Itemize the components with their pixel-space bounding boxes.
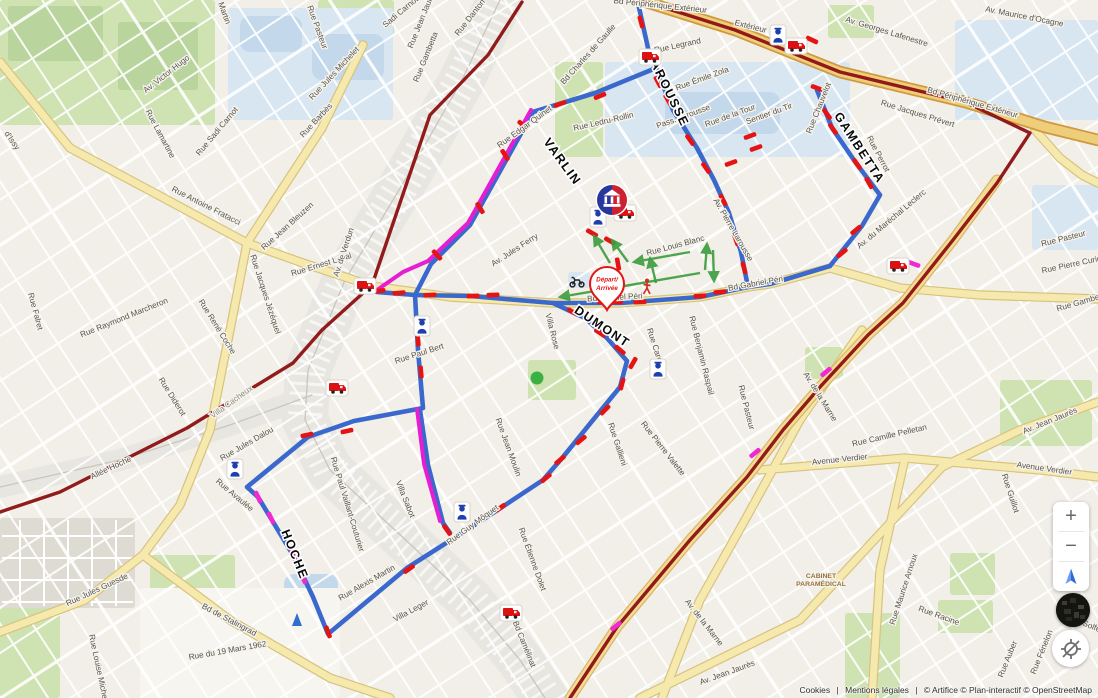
person-icon[interactable] (454, 502, 470, 522)
street-label: Villa Leger (392, 598, 430, 624)
satellite-view-button[interactable] (1056, 593, 1090, 627)
crosshair-slash-icon (1059, 637, 1083, 661)
person-icon[interactable] (770, 25, 786, 45)
street-label: Rue Jacques Jézéquel (248, 253, 282, 335)
attr-separator: | (837, 685, 839, 695)
geolocation-disabled-button[interactable] (1052, 630, 1089, 667)
compass-arrow-icon (1061, 567, 1081, 587)
zone-label: DUMONT (572, 303, 633, 350)
zoom-panel: + − (1053, 502, 1089, 591)
street-label: Rue Pierre Valette (639, 420, 687, 478)
street-label: Rue Falret (26, 292, 45, 332)
truck-icon[interactable] (354, 278, 376, 294)
person-icon[interactable] (227, 459, 243, 479)
svg-text:Départ/: Départ/ (596, 277, 619, 284)
zoom-out-button[interactable]: − (1053, 532, 1089, 561)
street-label: PARAMÉDICAL (796, 579, 846, 588)
truck-icon[interactable] (326, 380, 348, 396)
satellite-thumbnail-icon (1056, 593, 1090, 627)
truck-icon[interactable] (500, 605, 522, 621)
street-label: Av. Pierre Larousse (711, 197, 755, 263)
attr-separator: | (915, 685, 917, 695)
street-label: Rue Pierre Curie (1041, 254, 1098, 276)
map-svg[interactable]: Av. Victor HugoRue LamartineRue Sadi Car… (0, 0, 1098, 698)
green-dot-marker[interactable] (531, 372, 544, 385)
zone-label: HOCHE (278, 527, 311, 581)
zoom-in-button[interactable]: + (1053, 502, 1089, 531)
truck-icon[interactable] (639, 49, 661, 65)
svg-text:Arrivée: Arrivée (595, 285, 618, 292)
street-label: Rue Auber (996, 639, 1019, 678)
compass-button[interactable] (1053, 562, 1089, 591)
person-icon[interactable] (650, 359, 666, 379)
attribution-bar: Cookies | Mentions légales | © Artifice … (797, 685, 1094, 695)
truck-icon[interactable] (887, 258, 909, 274)
person-icon[interactable] (414, 316, 430, 336)
truck-icon[interactable] (785, 38, 807, 54)
townhall-icon[interactable] (596, 184, 629, 217)
legal-link[interactable]: Mentions légales (845, 685, 909, 695)
street-label: CABINET (806, 573, 837, 580)
street-label: Rue Raymond Marcheron (79, 296, 170, 340)
copyright-credits: © Artifice © Plan-interactif © OpenStree… (924, 685, 1092, 695)
cookies-link[interactable]: Cookies (799, 685, 830, 695)
map-canvas[interactable]: Av. Victor HugoRue LamartineRue Sadi Car… (0, 0, 1098, 698)
street-label: Rue Jean Moulin (494, 417, 524, 478)
